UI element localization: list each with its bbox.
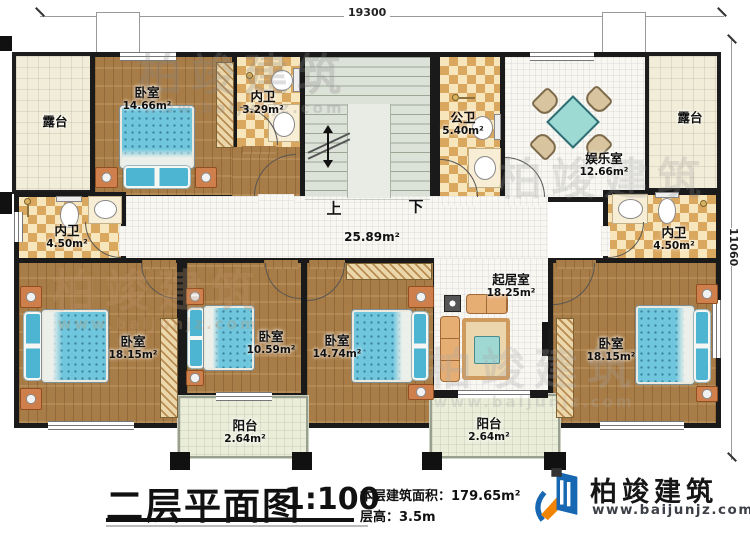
room-label-balcony-left: 阳台2.64m² [224,419,265,445]
coffee-table-icon [474,336,500,364]
floor-height-stat: 层高：3.5m [360,506,436,525]
bay-box [96,12,140,55]
wardrobe-icon [556,318,574,418]
bed-pillows-icon [24,312,42,380]
dimension-width-label: 19300 [344,6,390,19]
door-gap [242,146,276,154]
window [48,421,134,430]
window [216,392,272,401]
nightstand-icon [195,167,217,188]
dimension-tick [727,34,737,44]
room-label-bath-right: 内卫4.50m² [653,226,694,252]
room-label-living: 起居室18.25m² [487,273,536,299]
bed-pillows-icon [412,312,428,380]
window [712,300,721,358]
shower-arm [27,205,29,217]
sink-icon [94,200,117,219]
company-website: www.baijunjz.com [592,502,750,518]
bed-pillows-icon [694,310,710,382]
window [120,52,176,61]
floor-plan-sheet: 19300 11060 [0,0,750,535]
toilet-icon [658,198,676,224]
room-label-bedroom-mid: 卧室14.74m² [313,334,362,360]
nightstand-icon [95,167,118,188]
shower-arm [459,97,475,99]
bed-icon [636,306,694,384]
nightstand-icon [186,370,204,386]
room-label-terrace-left: 露台 [42,115,67,129]
title-underline-thin [106,525,368,527]
sink-icon [474,156,496,180]
window [530,52,594,61]
bed-pillows-icon [124,166,190,188]
stair-down-label: 下 [408,196,423,217]
room-label-bedroom-left: 卧室18.15m² [109,335,158,361]
stair-arrow-icon [327,133,329,161]
stair-up-label: 上 [326,198,341,219]
pillar [292,452,312,470]
toilet-tank-icon [293,68,300,92]
room-label-bath-top: 内卫3.29m² [242,90,283,116]
room-label-entertainment: 娱乐室12.66m² [580,152,629,178]
sofa-icon [440,316,460,382]
stair-landing [347,104,391,198]
floor-area-stat: 本层建筑面积：179.65m² [360,485,520,504]
tv-icon [542,322,548,356]
nightstand-icon [20,388,42,410]
bay-box [602,12,646,56]
shower-hook-icon [246,72,253,79]
bed-pillows-icon [188,308,204,368]
room-label-bedroom-top: 卧室14.66m² [123,86,172,112]
door-gap [442,196,476,206]
nightstand-icon [408,286,434,308]
door-gap [508,196,542,206]
company-logo-icon [534,466,586,524]
room-label-bedroom-right: 卧室18.15m² [587,337,636,363]
tv-cabinet-icon [444,295,461,312]
wardrobe-icon [216,62,234,148]
nightstand-icon [408,384,434,400]
nightstand-icon [186,288,204,305]
bed-icon [42,310,108,382]
dimension-depth-label: 11060 [723,228,744,266]
edge-pillar [0,192,12,214]
stair-arrow-up-icon [323,125,333,133]
room-label-terrace-right: 露台 [677,111,702,125]
nightstand-icon [696,386,718,402]
wardrobe-icon [160,318,178,418]
nightstand-icon [20,286,42,308]
sink-icon [618,199,643,219]
room-label-bath-public: 公卫5.40m² [442,111,483,137]
toilet-tank-icon [494,114,501,140]
stair-arrow-down-icon [323,160,333,168]
window [458,390,530,398]
dimension-tick [727,452,737,462]
wardrobe-icon [346,263,432,280]
shower-hook-icon [452,94,459,101]
pillar [422,452,442,470]
shower-hook-icon [700,200,707,207]
edge-pillar [0,36,12,51]
shower-hook-icon [24,198,31,205]
title-underline [106,518,354,522]
pillar [170,452,190,470]
nightstand-icon [696,284,718,304]
room-label-bedroom-mid-small: 卧室10.59m² [247,330,296,356]
room-label-bath-left: 内卫4.50m² [46,224,87,250]
window [14,212,23,242]
hall-area-label: 25.89m² [344,230,400,244]
bed-icon [120,106,194,168]
window [600,421,684,430]
room-label-balcony-right: 阳台2.64m² [468,417,509,443]
